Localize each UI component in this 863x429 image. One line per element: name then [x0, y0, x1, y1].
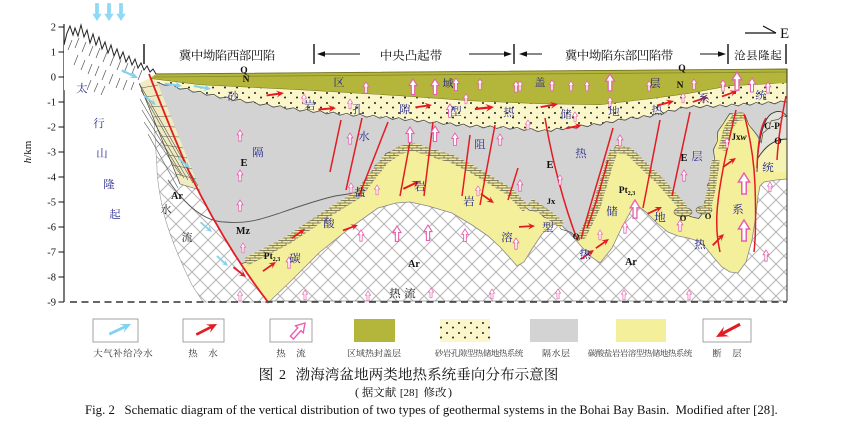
svg-text:Mz: Mz: [236, 226, 250, 237]
svg-text:-4: -4: [47, 173, 56, 184]
svg-text:[28]: [28]: [400, 387, 418, 399]
svg-text:E: E: [780, 26, 789, 42]
svg-text:-5: -5: [47, 198, 56, 209]
svg-text:h/km: h/km: [22, 140, 34, 163]
svg-text:-1: -1: [47, 98, 56, 109]
svg-text:-9: -9: [47, 298, 56, 309]
svg-text:E: E: [546, 160, 553, 171]
svg-text:-7: -7: [47, 248, 56, 259]
svg-text:O: O: [680, 213, 687, 223]
svg-text:Jxw: Jxw: [731, 132, 747, 142]
svg-text:-6: -6: [47, 223, 56, 234]
svg-text:Ar: Ar: [171, 191, 183, 202]
svg-text:O: O: [774, 137, 781, 147]
svg-text:-2: -2: [47, 123, 56, 134]
svg-text:Fig. 2 Schematic diagram of: Fig. 2 Schematic diagram of the vertical…: [85, 403, 778, 417]
svg-text:E: E: [680, 153, 687, 164]
svg-text:O: O: [705, 211, 712, 221]
svg-text:N: N: [677, 81, 684, 91]
svg-text:): ): [448, 385, 452, 399]
svg-text:Jx: Jx: [547, 196, 556, 206]
svg-text:1: 1: [51, 48, 56, 59]
svg-text:0: 0: [51, 73, 56, 84]
svg-text:Ar: Ar: [625, 257, 637, 268]
svg-text:-3: -3: [47, 148, 56, 159]
svg-text:Ar: Ar: [408, 259, 420, 270]
svg-text:Q: Q: [573, 231, 580, 241]
svg-text:N: N: [243, 75, 250, 85]
svg-text:2: 2: [51, 23, 56, 34]
svg-text:E: E: [240, 158, 247, 169]
svg-text:2: 2: [279, 368, 286, 383]
svg-text:(: (: [355, 385, 359, 399]
svg-text:C-P: C-P: [764, 122, 780, 132]
svg-text:-8: -8: [47, 273, 56, 284]
svg-text:Q: Q: [678, 64, 685, 74]
